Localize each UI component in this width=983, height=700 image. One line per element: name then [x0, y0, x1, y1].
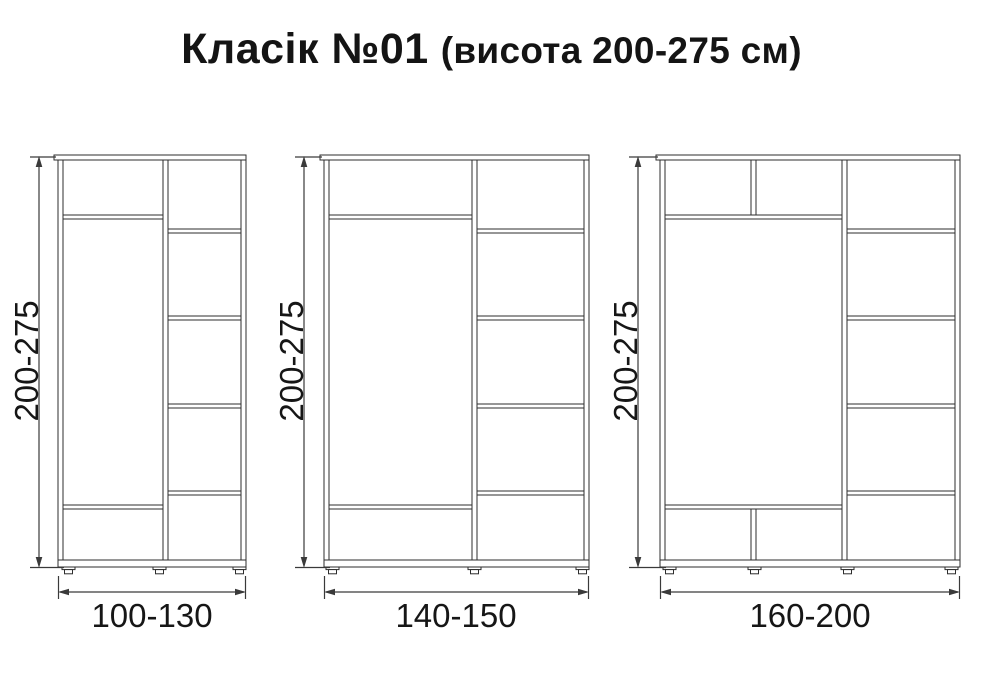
shelf-panel	[847, 316, 955, 320]
top-panel	[54, 155, 246, 160]
foot	[233, 567, 246, 574]
width-label: 160-200	[749, 597, 870, 634]
shelf-panel	[168, 404, 241, 408]
left-wall	[660, 160, 665, 563]
height-label: 200-275	[273, 300, 310, 421]
shelf-panel	[477, 229, 584, 233]
center-divider	[472, 160, 477, 563]
base-panel	[660, 560, 960, 567]
height-dimension: 200-275	[273, 156, 330, 568]
shelf-panel	[477, 404, 584, 408]
cabinet-frame	[656, 155, 960, 574]
base-panel	[58, 560, 246, 567]
cabinet-frame	[54, 155, 246, 574]
wardrobes-diagram: 200-275 100-130	[0, 0, 983, 700]
shelf-panel	[477, 491, 584, 495]
shelf-panel	[847, 491, 955, 495]
bottom-row-divider	[751, 509, 756, 560]
shelf-panel	[847, 404, 955, 408]
width-dimension: 160-200	[660, 576, 960, 634]
shelf-panel	[665, 215, 842, 219]
right-wall	[584, 160, 589, 563]
shelf-panel	[63, 215, 163, 219]
wardrobe-1: 200-275 100-130	[8, 155, 246, 634]
height-dimension: 200-275	[607, 156, 666, 568]
page: Класік №01(висота 200-275 см)	[0, 0, 983, 700]
right-wall	[241, 160, 246, 563]
width-dimension: 100-130	[58, 576, 246, 634]
shelf-panel	[329, 215, 472, 219]
foot	[841, 567, 854, 574]
shelf-panel	[477, 316, 584, 320]
shelf-panel	[63, 505, 163, 509]
shelf-panel	[329, 505, 472, 509]
width-label: 100-130	[91, 597, 212, 634]
foot	[468, 567, 481, 574]
base-panel	[324, 560, 589, 567]
width-dimension: 140-150	[324, 576, 589, 634]
center-divider	[163, 160, 168, 563]
right-wall	[955, 160, 960, 563]
foot	[576, 567, 589, 574]
width-label: 140-150	[395, 597, 516, 634]
foot	[153, 567, 166, 574]
shelf-panel	[665, 505, 842, 509]
top-row-divider	[751, 160, 756, 215]
foot	[748, 567, 761, 574]
shelf-panel	[847, 229, 955, 233]
left-wall	[324, 160, 329, 563]
left-wall	[58, 160, 63, 563]
height-label: 200-275	[8, 300, 45, 421]
shelf-panel	[168, 229, 241, 233]
cabinet-frame	[320, 155, 589, 574]
height-label: 200-275	[607, 300, 644, 421]
shelf-panel	[168, 316, 241, 320]
wardrobe-2: 200-275 140-150	[273, 155, 589, 634]
center-divider	[842, 160, 847, 563]
top-panel	[320, 155, 589, 160]
top-panel	[656, 155, 960, 160]
shelf-panel	[168, 491, 241, 495]
wardrobe-3: 200-275 160-200	[607, 155, 960, 634]
foot	[945, 567, 958, 574]
height-dimension: 200-275	[8, 156, 64, 568]
